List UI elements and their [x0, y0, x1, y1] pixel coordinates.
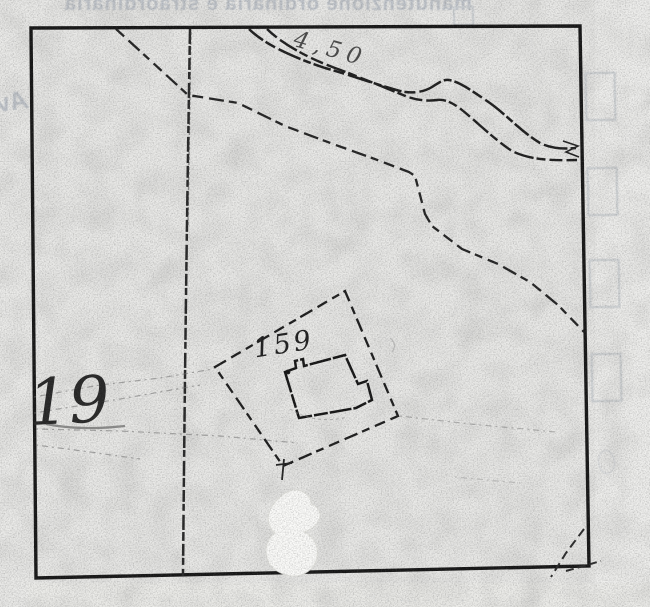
scanned-cadastral-map-page: manutenzione ordinaria e straordinaria A… [0, 0, 650, 607]
left-parcel-number-label: 19 [26, 363, 111, 441]
survey-point-dot-icon [286, 370, 291, 375]
cadastral-map-drawing: 159 19 4,50 [0, 0, 650, 607]
